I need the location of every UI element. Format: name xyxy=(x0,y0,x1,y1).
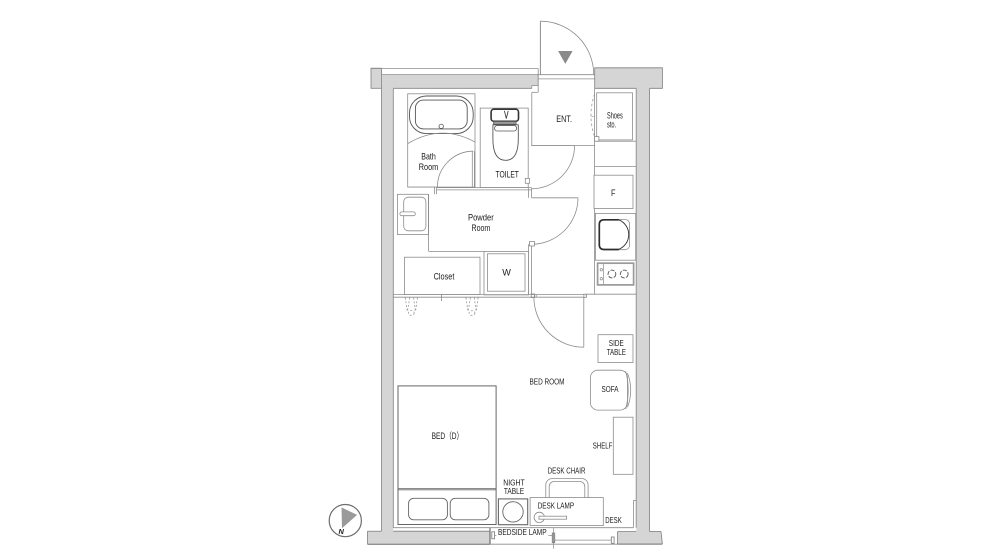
svg-text:SIDE: SIDE xyxy=(609,339,624,348)
svg-text:SOFA: SOFA xyxy=(602,384,619,394)
svg-text:DESK LAMP: DESK LAMP xyxy=(538,501,575,510)
svg-text:Closet: Closet xyxy=(434,272,455,282)
svg-text:BED（D）: BED（D） xyxy=(432,431,464,441)
svg-text:Room: Room xyxy=(472,222,491,233)
svg-text:BEDSIDE LAMP: BEDSIDE LAMP xyxy=(498,528,547,537)
svg-text:SHELF: SHELF xyxy=(593,441,613,451)
svg-text:Room: Room xyxy=(419,161,439,172)
svg-text:TOILET: TOILET xyxy=(496,169,520,179)
svg-text:sto.: sto. xyxy=(607,120,616,130)
svg-text:DESK: DESK xyxy=(605,515,622,525)
svg-text:DESK CHAIR: DESK CHAIR xyxy=(548,467,586,476)
svg-text:BED ROOM: BED ROOM xyxy=(530,377,565,387)
svg-text:N: N xyxy=(339,527,345,536)
svg-text:F: F xyxy=(611,188,616,198)
svg-text:TABLE: TABLE xyxy=(504,487,525,496)
svg-text:ENT.: ENT. xyxy=(556,114,572,124)
svg-text:W: W xyxy=(502,268,511,278)
svg-text:TABLE: TABLE xyxy=(607,348,627,357)
